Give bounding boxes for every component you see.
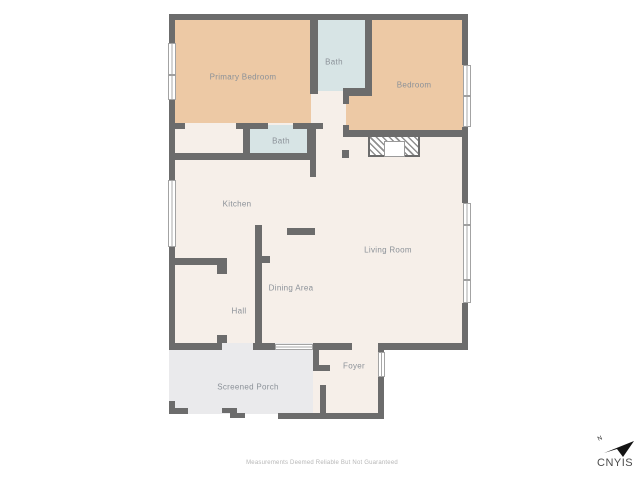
label-bedroom: Bedroom <box>397 81 432 90</box>
label-screened-porch: Screened Porch <box>217 383 279 392</box>
primary-bedroom-floor <box>175 20 311 123</box>
window <box>275 344 313 350</box>
wall <box>287 228 315 235</box>
wall <box>378 343 384 352</box>
wall <box>243 127 250 153</box>
window-mullion <box>463 224 471 226</box>
window <box>378 352 385 377</box>
window-mullion <box>463 95 471 97</box>
wall <box>169 258 227 265</box>
label-hall: Hall <box>232 307 247 316</box>
label-bath-lower: Bath <box>272 137 290 146</box>
wall <box>169 14 175 43</box>
wall <box>169 153 315 160</box>
window-mullion <box>168 74 176 76</box>
floorplan-canvas: Primary Bedroom Bath Bedroom Bath Kitche… <box>0 0 640 480</box>
wall <box>255 225 262 345</box>
wall <box>278 413 384 419</box>
wall <box>169 408 188 414</box>
wall <box>169 343 222 350</box>
wall <box>383 343 468 350</box>
wall <box>378 377 384 418</box>
window <box>168 43 176 100</box>
bath-upper-floor <box>316 20 366 91</box>
bedroom-floor <box>370 20 463 130</box>
label-primary-bedroom: Primary Bedroom <box>210 73 277 82</box>
window <box>463 203 471 303</box>
wall <box>343 94 349 104</box>
wall <box>365 14 372 94</box>
fireplace <box>368 135 420 157</box>
wall <box>217 265 227 274</box>
label-foyer: Foyer <box>343 362 365 371</box>
wall <box>262 256 270 263</box>
bedroom-floor-ext <box>346 96 372 132</box>
wall <box>462 14 468 65</box>
wall <box>230 413 245 418</box>
north-arrow-icon <box>602 440 636 458</box>
wall <box>343 130 468 137</box>
label-dining-area: Dining Area <box>269 284 314 293</box>
wall <box>175 123 185 129</box>
wall <box>217 335 227 343</box>
fireplace-insert <box>384 141 405 157</box>
window <box>168 180 176 247</box>
wall <box>236 123 268 129</box>
wall <box>462 127 468 203</box>
screened-porch-floor <box>169 343 320 414</box>
wall <box>310 14 318 94</box>
label-bath-upper: Bath <box>325 58 343 67</box>
disclaimer-text: Measurements Deemed Reliable But Not Gua… <box>246 460 398 466</box>
wall <box>313 343 319 371</box>
wall <box>343 125 349 137</box>
wall <box>169 100 175 180</box>
wall <box>320 385 326 418</box>
label-living-room: Living Room <box>364 246 412 255</box>
label-kitchen: Kitchen <box>223 200 252 209</box>
wall <box>307 123 315 153</box>
wall <box>342 150 349 158</box>
logo-text: CNYIS <box>597 457 633 469</box>
cnyis-logo: N CNYIS <box>594 440 640 474</box>
window-mullion <box>463 279 471 281</box>
wall <box>169 14 468 20</box>
